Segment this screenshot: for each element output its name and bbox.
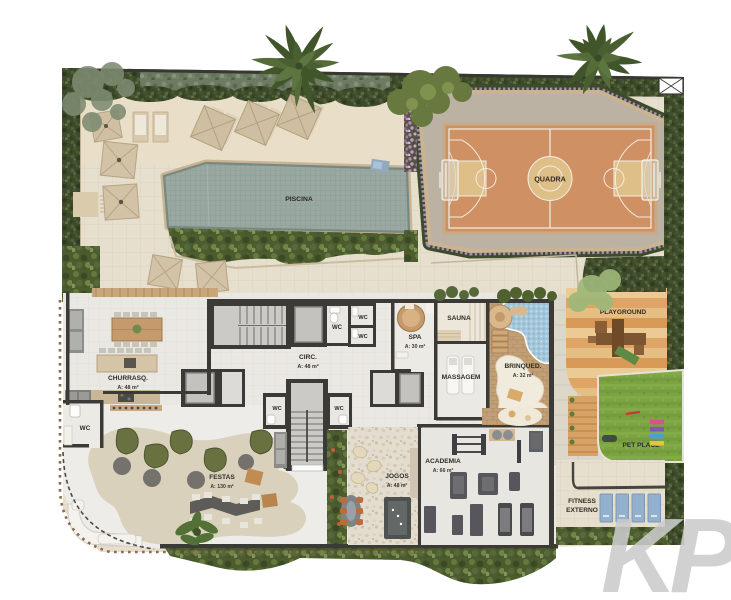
svg-text:KP: KP — [601, 497, 731, 600]
svg-text:FITNESS: FITNESS — [568, 498, 596, 505]
svg-text:JOGOS: JOGOS — [385, 473, 409, 480]
svg-text:WC: WC — [272, 406, 281, 412]
svg-text:CHURRASQ.: CHURRASQ. — [108, 375, 148, 382]
svg-text:A: 48 m²: A: 48 m² — [387, 483, 408, 489]
svg-text:A: 30 m²: A: 30 m² — [405, 344, 426, 350]
svg-text:A: 130 m²: A: 130 m² — [210, 484, 234, 490]
svg-text:EXTERNO: EXTERNO — [566, 507, 598, 514]
svg-text:WC: WC — [80, 425, 91, 432]
svg-text:A: 48 m²: A: 48 m² — [297, 364, 318, 370]
svg-text:SPA: SPA — [408, 334, 421, 341]
svg-text:SAUNA: SAUNA — [447, 315, 471, 322]
svg-text:A: 32 m²: A: 32 m² — [513, 373, 534, 379]
svg-text:QUADRA: QUADRA — [534, 175, 566, 184]
svg-text:MASSAGEM: MASSAGEM — [442, 374, 481, 381]
svg-text:WC: WC — [358, 315, 367, 321]
svg-text:WC: WC — [334, 406, 343, 412]
svg-text:ACADEMIA: ACADEMIA — [425, 458, 461, 465]
svg-text:FESTAS: FESTAS — [209, 474, 235, 481]
svg-text:WC: WC — [358, 334, 367, 340]
svg-text:CIRC.: CIRC. — [299, 354, 317, 361]
svg-text:BRINQUED.: BRINQUED. — [505, 363, 542, 370]
svg-text:PISCINA: PISCINA — [285, 196, 313, 203]
svg-text:WC: WC — [332, 325, 343, 331]
